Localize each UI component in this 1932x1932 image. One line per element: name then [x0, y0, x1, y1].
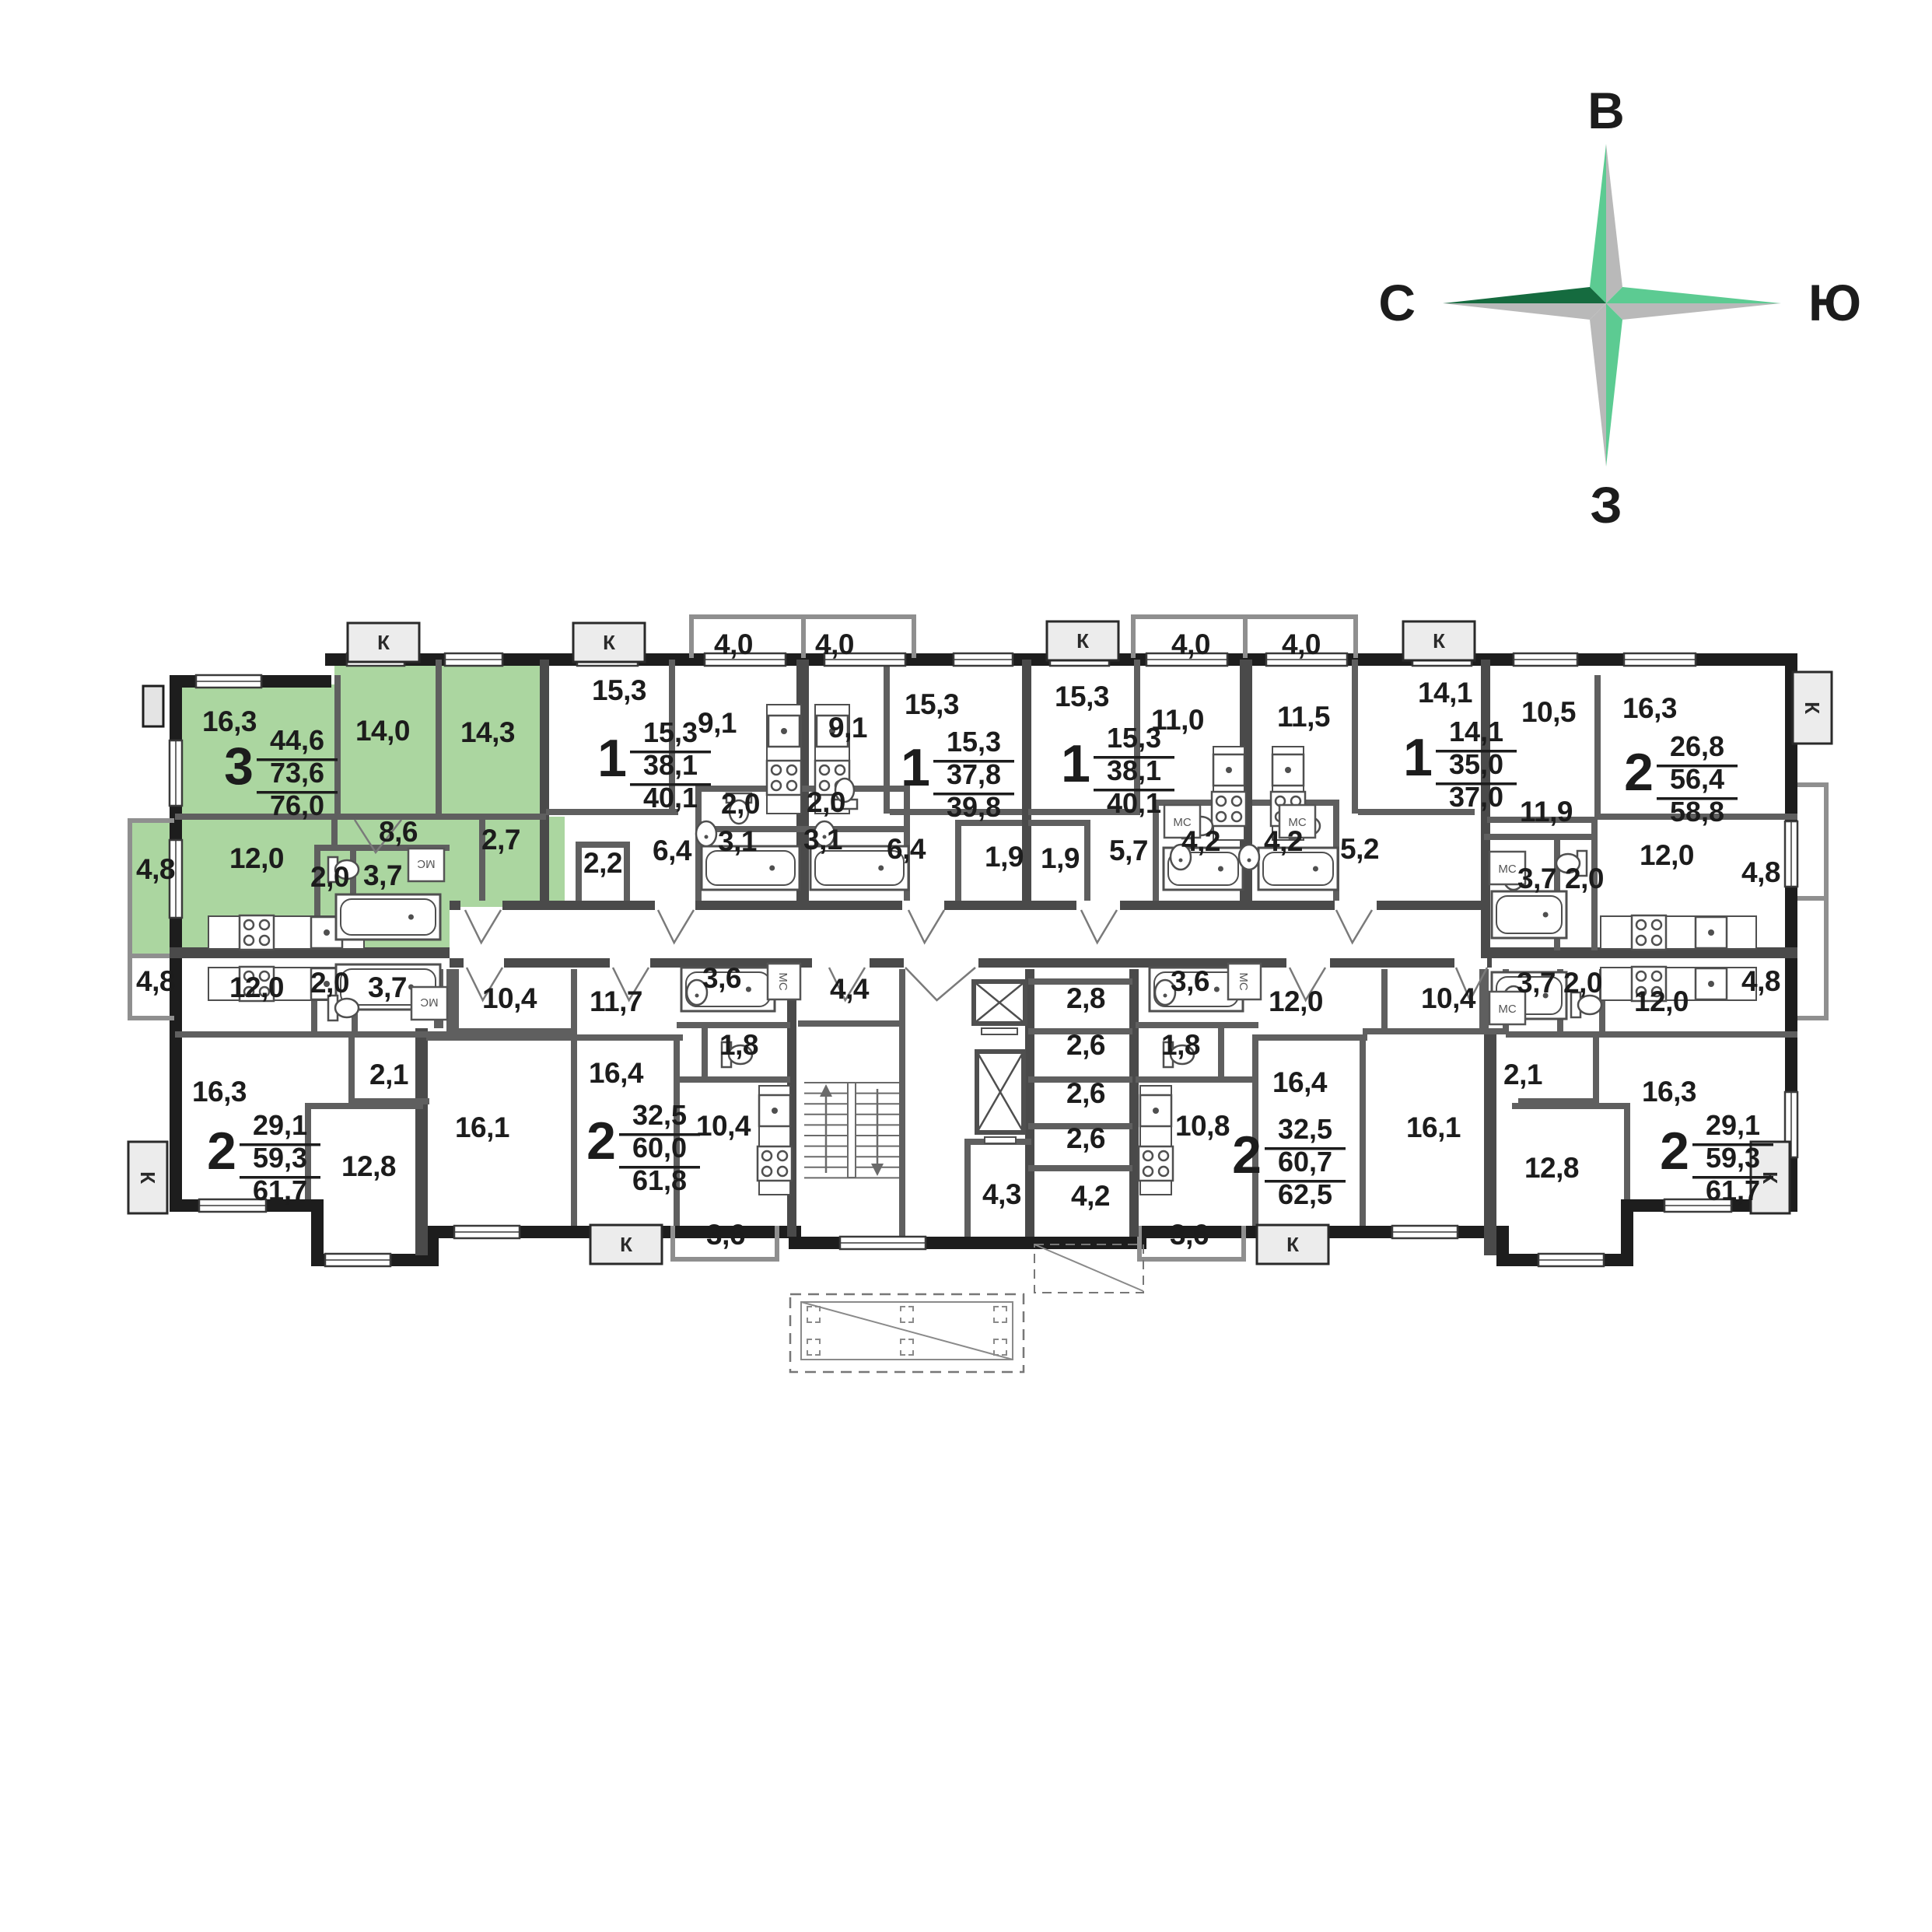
apartment-area-total: 39,8: [947, 791, 1001, 823]
canopy-column-mark: [901, 1307, 913, 1322]
room-area-green-wardrobe: 2,7: [481, 824, 520, 856]
chip-k-label: К: [1286, 1233, 1299, 1256]
window: [454, 1226, 520, 1238]
wall-segment: [415, 1028, 428, 1255]
apartment-summary-apt-2k-s2: 232,560,762,5: [1232, 1113, 1346, 1210]
apartment-area-living: 15,3: [947, 726, 1001, 758]
wall-segment: [870, 958, 904, 968]
washing-machine-chip-mc: МС: [408, 849, 444, 881]
wall-segment: [1381, 969, 1388, 1034]
ventilation-chip-k: К: [1257, 1225, 1328, 1264]
room-area-a3-hall: 6,4: [887, 833, 926, 865]
room-area-green-bedroom-1: 14,0: [355, 715, 410, 747]
apartment-area-total: 61,8: [632, 1164, 687, 1196]
room-area-a6-bath: 3,7: [1517, 863, 1556, 894]
window: [840, 1237, 926, 1249]
room-area-a5-room: 14,1: [1418, 677, 1472, 709]
wall-segment: [450, 1028, 576, 1034]
wall-segment: [912, 614, 916, 658]
room-area-a4-wardrobe: 1,9: [1041, 842, 1080, 874]
wall-segment: [1353, 614, 1358, 658]
room-area-a7-corridor: 10,4: [482, 982, 537, 1014]
wall-segment: [1487, 958, 1492, 968]
apartment-area-total: 76,0: [270, 789, 324, 821]
facade-pylon: [143, 686, 163, 726]
apartment-summary-apt-1k-b: 115,337,839,8: [901, 726, 1014, 823]
wall-segment: [128, 818, 174, 823]
apartment-rooms-count: 1: [901, 738, 930, 797]
room-area-a2-room: 15,3: [592, 674, 646, 706]
apartment-area-living: 26,8: [1670, 730, 1724, 762]
wall-segment: [689, 614, 694, 658]
compass-rose: В Ю З С: [1378, 82, 1861, 534]
room-area-a9-kitchen: 10,8: [1175, 1110, 1230, 1142]
door-opening: [1081, 910, 1117, 943]
window: [196, 675, 261, 688]
room-area-a7-room-1: 16,3: [192, 1076, 247, 1108]
wall-segment: [128, 818, 132, 1020]
apartment-area-total: 40,1: [643, 782, 698, 814]
wall-segment: [175, 814, 546, 820]
apartment-area-total: 61,7: [1706, 1174, 1760, 1206]
room-area-a9-room-2: 16,1: [1406, 1111, 1461, 1143]
door-opening: [905, 968, 975, 1000]
wall-segment: [899, 969, 905, 1237]
wall-segment: [1028, 820, 1090, 826]
apartment-area-main: 59,3: [253, 1142, 307, 1174]
window: [325, 1254, 390, 1266]
window: [1538, 1254, 1604, 1266]
apartment-summary-apt-2k-se: 229,159,361,7: [1660, 1109, 1773, 1206]
apartment-area-main: 38,1: [643, 749, 698, 781]
window: [1514, 653, 1577, 666]
chip-mc-label: МС: [420, 996, 438, 1009]
apartment-summary-apt-2k-s1: 232,560,061,8: [586, 1099, 700, 1196]
wall-segment: [1218, 1028, 1224, 1080]
stove-icon: [758, 1146, 792, 1181]
apartment-summary-apt-2k-sw: 229,159,361,7: [207, 1109, 320, 1206]
door-opening: [658, 910, 694, 943]
apartment-area-living: 44,6: [270, 724, 324, 756]
wall-segment: [1797, 896, 1829, 901]
room-area-a3-kitchen: 9,1: [828, 712, 867, 744]
compass-label-bottom: З: [1590, 476, 1622, 534]
wall-segment: [128, 1016, 174, 1020]
elevator-shaft: [974, 982, 1025, 1034]
kitchen-sink-icon: [1696, 968, 1727, 999]
door-opening: [1336, 910, 1372, 943]
wall-segment: [775, 1226, 779, 1262]
apartment-area-living: 15,3: [1107, 722, 1161, 754]
room-area-a4-hall: 5,7: [1109, 835, 1148, 866]
wall-segment: [670, 1226, 675, 1262]
wall-segment: [1797, 782, 1829, 787]
apartment-summary-apt-1k-c: 115,338,140,1: [1061, 722, 1174, 819]
apartment-area-total: 58,8: [1670, 796, 1724, 828]
room-area-a9-wc: 1,8: [1161, 1029, 1200, 1061]
room-area-a7-wc: 2,0: [310, 967, 349, 999]
room-area-a2-hall: 6,4: [653, 835, 692, 866]
canopy-column-mark: [994, 1339, 1006, 1355]
wall-segment: [348, 1038, 355, 1103]
ventilation-chip-k: К: [1403, 621, 1475, 660]
apartment-area-living: 15,3: [643, 716, 698, 748]
wall-segment: [453, 969, 459, 1034]
chip-mc-label: МС: [417, 857, 435, 870]
canopy-column-mark: [807, 1307, 820, 1322]
wall-segment: [670, 1257, 779, 1262]
wall-segment: [677, 1076, 790, 1083]
wall-segment: [1330, 958, 1454, 968]
wall-segment: [1593, 1038, 1599, 1103]
washing-machine-chip-mc: МС: [1228, 964, 1261, 999]
bathtub-icon: [1492, 891, 1566, 938]
apartment-area-main: 35,0: [1449, 748, 1503, 780]
room-area-green-bedroom-2: 14,3: [460, 716, 515, 748]
kitchen-counter: [1601, 916, 1756, 949]
washing-machine-chip-mc: МС: [768, 964, 800, 999]
room-area-a6-kitchen: 12,0: [1640, 839, 1694, 871]
room-area-core-vestibule: 4,3: [982, 1178, 1021, 1210]
door-opening: [908, 910, 944, 943]
stove-icon: [1139, 1146, 1173, 1181]
apartment-summary-apt-1k-a: 115,338,140,1: [597, 716, 711, 814]
wall-segment: [128, 954, 174, 958]
wall-segment: [1136, 1076, 1258, 1083]
wall-segment: [1129, 969, 1139, 1237]
apartment-area-living: 32,5: [1278, 1113, 1332, 1145]
stove-icon: [767, 761, 801, 795]
room-area-a8-balcony: 3,6: [706, 1219, 745, 1251]
apartment-rooms-count: 3: [224, 737, 254, 796]
room-area-a6-room-2: 10,5: [1521, 696, 1576, 728]
wall-segment: [334, 675, 341, 820]
window: [1785, 821, 1797, 887]
wall-segment: [450, 901, 460, 910]
apartment-rooms-count: 2: [1660, 1122, 1689, 1181]
room-area-a8-hall: 11,7: [590, 985, 642, 1017]
wall-segment: [1512, 1103, 1627, 1109]
apartment-rooms-count: 2: [1624, 743, 1654, 802]
ventilation-chip-k: К: [573, 623, 645, 662]
wall-segment: [540, 660, 549, 901]
room-area-a4-bath: 4,2: [1181, 825, 1220, 857]
chip-mc-label: МС: [1498, 1003, 1516, 1016]
room-area-a4-room: 15,3: [1055, 681, 1109, 712]
room-area-core-cell-2: 2,6: [1066, 1029, 1105, 1061]
chip-k-label: К: [1076, 629, 1089, 653]
wall-segment: [175, 1031, 450, 1038]
apartment-rooms-count: 2: [1232, 1125, 1262, 1185]
window: [1392, 1226, 1458, 1238]
wall-segment: [1377, 901, 1489, 910]
room-area-a2-balcony: 4,0: [714, 628, 753, 660]
wall-segment: [1797, 1016, 1829, 1020]
wall-segment: [571, 969, 577, 1226]
ventilation-chip-k: К: [128, 1142, 167, 1213]
apartment-rooms-count: 1: [1403, 728, 1433, 787]
washbasin-icon: [696, 821, 716, 846]
room-area-a5-hall: 5,2: [1340, 833, 1379, 865]
apartment-area-total: 37,0: [1449, 781, 1503, 813]
room-area-a7-kitchen: 12,0: [229, 971, 284, 1003]
apartment-rooms-count: 1: [597, 729, 627, 788]
chip-k-label: К: [1801, 702, 1824, 714]
wall-segment: [348, 1098, 429, 1104]
room-area-core-cell-4: 2,6: [1066, 1122, 1105, 1154]
compass-label-top: В: [1587, 82, 1625, 139]
compass-label-left: С: [1378, 274, 1416, 331]
ventilation-chip-k: К: [590, 1225, 662, 1264]
room-area-a6-wc: 2,0: [1565, 863, 1604, 894]
room-area-a9-balcony: 3,6: [1170, 1219, 1209, 1251]
room-area-a10-corridor: 10,4: [1421, 982, 1476, 1014]
ventilation-chip-k: К: [348, 623, 419, 662]
canopy-column-mark: [807, 1339, 820, 1355]
apartment-area-main: 60,7: [1278, 1146, 1332, 1178]
wall-segment: [955, 820, 961, 901]
wall-segment: [944, 901, 1076, 910]
wall-segment: [436, 660, 442, 820]
room-area-a10-room-2: 12,8: [1524, 1152, 1579, 1184]
room-area-a7-room-2: 12,8: [341, 1150, 396, 1182]
room-area-green-bath: 3,7: [363, 859, 402, 891]
wall-segment: [1824, 782, 1829, 1020]
wall-segment: [1241, 1226, 1246, 1262]
room-area-green-hall: 8,6: [379, 816, 418, 848]
room-area-a3-wardrobe: 1,9: [985, 841, 1024, 873]
wall-segment: [1243, 614, 1248, 658]
bathtub-icon: [336, 894, 440, 940]
window: [1624, 653, 1696, 666]
apartment-area-total: 62,5: [1278, 1178, 1332, 1210]
apartment-rooms-count: 2: [586, 1111, 616, 1171]
room-area-a5-balcony: 4,0: [1282, 628, 1321, 660]
door-opening: [465, 910, 501, 943]
wall-segment: [1252, 1034, 1367, 1041]
wall-segment: [964, 1139, 971, 1237]
window: [954, 653, 1013, 666]
room-area-a10-bath: 3,7: [1517, 967, 1556, 999]
elevator-shaft: [977, 1052, 1024, 1143]
chip-k-label: К: [603, 631, 615, 654]
room-area-a8-wc: 1,8: [719, 1029, 758, 1061]
canopy-column-mark: [901, 1339, 913, 1355]
kitchen-sink-icon: [759, 1095, 790, 1126]
wall-segment: [1028, 1165, 1132, 1171]
wall-segment: [1084, 820, 1090, 901]
room-area-a3-balcony: 4,0: [815, 628, 854, 660]
room-area-a3-bath: 3,1: [803, 824, 842, 856]
apartment-area-main: 59,3: [1706, 1142, 1760, 1174]
canopy-column-mark: [994, 1307, 1006, 1322]
stove-icon: [240, 915, 274, 950]
wall-segment: [1131, 614, 1136, 658]
apartment-area-main: 56,4: [1670, 763, 1724, 795]
chip-k-label: К: [377, 631, 390, 654]
room-area-a10-wardrobe: 2,1: [1503, 1059, 1542, 1090]
chip-mc-label: МС: [1237, 972, 1250, 990]
stove-icon: [1632, 915, 1666, 950]
floor-plan: В Ю З С КККККККККМСМСМСМСМСМСМСМС 16,314…: [0, 0, 1932, 1932]
room-area-a3-wc: 2,0: [807, 786, 845, 818]
room-area-green-kitchen: 12,0: [229, 842, 284, 874]
room-area-a2-kitchen: 9,1: [698, 707, 737, 739]
wall-segment: [1352, 660, 1358, 814]
apartment-summary-apt-2k-ne: 226,856,458,8: [1624, 730, 1738, 828]
washbasin-icon: [1239, 845, 1259, 870]
room-area-a10-room-1: 16,3: [1642, 1076, 1696, 1108]
room-area-a10-balcony: 4,8: [1741, 965, 1780, 997]
chip-mc-label: МС: [1498, 863, 1516, 876]
room-area-a9-hall: 12,0: [1269, 985, 1323, 1017]
wall-segment: [1136, 1022, 1258, 1028]
chip-k-label: К: [136, 1171, 159, 1184]
ventilation-chip-k: К: [1793, 672, 1832, 744]
room-area-a3-room: 15,3: [905, 688, 959, 720]
kitchen-sink-icon: [1140, 1095, 1171, 1126]
kitchen-sink-icon: [1213, 754, 1244, 786]
compass-label-right: Ю: [1808, 274, 1861, 331]
ventilation-chip-k: К: [1047, 621, 1118, 660]
wall-segment: [702, 1028, 708, 1080]
apartment-area-main: 60,0: [632, 1132, 687, 1164]
chip-mc-label: МС: [776, 972, 789, 990]
room-area-a5-bath: 4,2: [1264, 825, 1303, 857]
room-area-a10-wc: 2,0: [1563, 967, 1602, 999]
room-area-a2-bath: 3,1: [718, 825, 757, 857]
room-area-a6-balcony: 4,8: [1741, 856, 1780, 888]
window: [170, 740, 182, 806]
room-area-a7-wardrobe: 2,1: [369, 1059, 408, 1090]
wall-segment: [504, 958, 610, 968]
apartment-area-main: 38,1: [1107, 754, 1161, 786]
room-area-a4-balcony: 4,0: [1171, 628, 1210, 660]
washing-machine-chip-mc: МС: [411, 987, 447, 1020]
chip-k-label: К: [1433, 629, 1445, 653]
wall-segment: [502, 901, 655, 910]
kitchen-sink-icon: [1272, 754, 1304, 786]
wall-segment: [801, 614, 806, 658]
apartment-summary-apt-1k-d: 114,135,037,0: [1403, 716, 1517, 813]
room-area-core-cell-3: 2,6: [1066, 1077, 1105, 1109]
wall-segment: [1484, 1028, 1496, 1255]
apartment-area-main: 37,8: [947, 758, 1001, 790]
room-area-a8-bath: 3,6: [702, 962, 741, 994]
wall-segment: [1381, 1028, 1509, 1034]
wall-segment: [577, 1034, 683, 1041]
wall-segment: [1624, 1103, 1630, 1199]
window: [445, 653, 502, 666]
apartment-rooms-count: 2: [207, 1122, 236, 1181]
apartment-area-living: 29,1: [253, 1109, 307, 1141]
stove-icon: [1212, 792, 1246, 826]
apartment-area-living: 29,1: [1706, 1109, 1760, 1141]
elevator-door: [982, 1028, 1017, 1034]
wall-segment: [450, 958, 464, 968]
entrance-canopy: [790, 1244, 1143, 1372]
apartment-area-main: 73,6: [270, 757, 324, 789]
wall-segment: [1484, 834, 1594, 840]
wall-segment: [1360, 1038, 1366, 1226]
wall-segment: [798, 1020, 905, 1027]
kitchen-sink-icon: [1696, 917, 1727, 948]
staircase: [804, 1083, 899, 1178]
room-area-green-wc: 2,0: [310, 861, 349, 893]
room-area-a6-hall: 11,9: [1520, 796, 1573, 828]
wall-segment: [1506, 1031, 1797, 1038]
room-area-a5-kitchen: 11,5: [1277, 701, 1330, 733]
wall-segment: [1594, 675, 1601, 820]
room-area-core-cell-1: 2,8: [1066, 982, 1105, 1014]
room-area-core-cell-5: 4,2: [1071, 1180, 1110, 1212]
apartment-rooms-count: 1: [1061, 734, 1090, 793]
wall-segment: [1120, 901, 1335, 910]
apartment-area-total: 40,1: [1107, 787, 1161, 819]
room-area-a7-balcony: 4,8: [136, 965, 175, 997]
chip-k-label: К: [620, 1233, 632, 1256]
floor-plan-page: В Ю З С КККККККККМСМСМСМСМСМСМСМС 16,314…: [0, 0, 1932, 1932]
room-area-a8-room-2: 16,1: [455, 1111, 509, 1143]
apartment-area-living: 14,1: [1449, 716, 1503, 747]
wall-segment: [426, 1034, 577, 1041]
room-area-a2-wc: 2,0: [721, 788, 760, 820]
room-area-a9-bath: 3,6: [1171, 965, 1209, 997]
room-area-a9-room-1: 16,4: [1272, 1066, 1328, 1098]
compass-point-ne: [1590, 144, 1606, 303]
room-area-a7-bath: 3,7: [368, 971, 407, 1003]
room-area-green-living: 16,3: [202, 705, 257, 737]
apartment-area-living: 32,5: [632, 1099, 687, 1131]
wall-segment: [624, 842, 630, 901]
elevator-door: [985, 1137, 1016, 1143]
room-area-a10-kitchen: 12,0: [1634, 985, 1689, 1017]
wall-segment: [576, 842, 582, 901]
wall-segment: [1137, 1257, 1246, 1262]
apartment-area-total: 61,7: [253, 1174, 307, 1206]
room-area-core-lobby: 4,4: [830, 973, 870, 1005]
wall-segment: [695, 901, 902, 910]
wall-segment: [331, 820, 338, 848]
room-area-a6-room-1: 16,3: [1622, 692, 1677, 724]
room-area-a2-wardrobe: 2,2: [583, 847, 622, 879]
wall-segment: [677, 1022, 790, 1028]
room-area-a8-kitchen: 10,4: [696, 1110, 751, 1142]
kitchen-sink-icon: [768, 716, 800, 747]
room-area-green-balcony: 4,8: [136, 853, 175, 885]
room-area-a8-room-1: 16,4: [589, 1057, 644, 1089]
